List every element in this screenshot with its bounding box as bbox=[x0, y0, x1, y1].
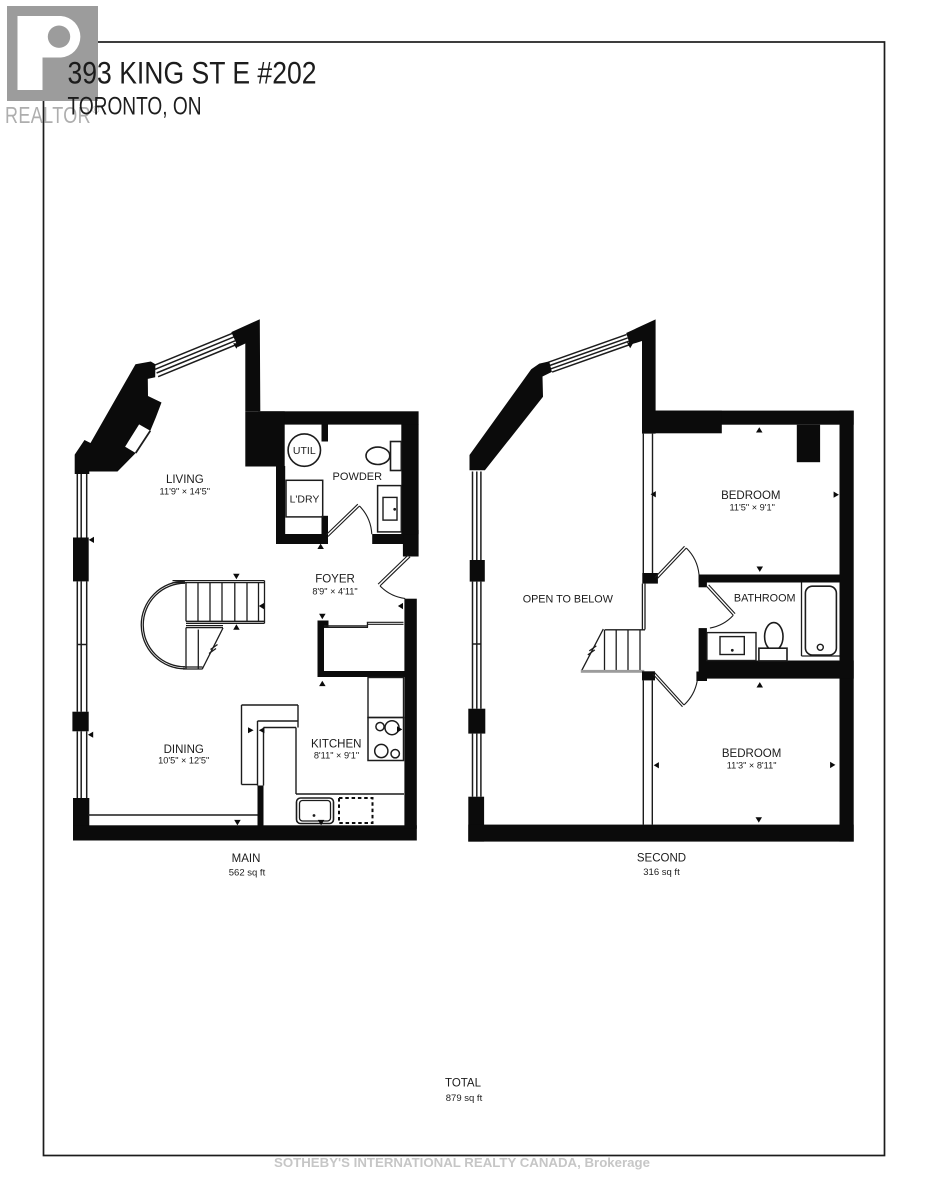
svg-text:393 KING ST E #202: 393 KING ST E #202 bbox=[68, 55, 317, 91]
svg-text:KITCHEN: KITCHEN bbox=[311, 738, 361, 750]
svg-text:UTIL: UTIL bbox=[293, 445, 316, 457]
svg-text:OPEN TO BELOW: OPEN TO BELOW bbox=[523, 594, 614, 606]
svg-text:10'5" × 12'5": 10'5" × 12'5" bbox=[158, 756, 209, 766]
svg-text:BEDROOM: BEDROOM bbox=[722, 748, 781, 760]
svg-text:MAIN: MAIN bbox=[232, 853, 261, 865]
svg-text:TOTAL: TOTAL bbox=[445, 1077, 482, 1089]
svg-text:TORONTO, ON: TORONTO, ON bbox=[68, 92, 202, 120]
svg-text:8'11" × 9'1": 8'11" × 9'1" bbox=[314, 750, 359, 760]
svg-text:11'3" × 8'11": 11'3" × 8'11" bbox=[727, 761, 777, 771]
svg-text:L'DRY: L'DRY bbox=[290, 493, 320, 505]
svg-text:LIVING: LIVING bbox=[166, 474, 204, 486]
svg-text:SECOND: SECOND bbox=[637, 852, 686, 864]
svg-text:11'9" × 14'5": 11'9" × 14'5" bbox=[160, 487, 210, 497]
svg-text:POWDER: POWDER bbox=[333, 471, 383, 483]
svg-text:SOTHEBY'S INTERNATIONAL REALTY: SOTHEBY'S INTERNATIONAL REALTY CANADA, B… bbox=[274, 1155, 650, 1170]
svg-text:FOYER: FOYER bbox=[315, 573, 355, 585]
svg-text:BEDROOM: BEDROOM bbox=[721, 490, 780, 502]
svg-text:316 sq ft: 316 sq ft bbox=[643, 867, 680, 878]
svg-text:562 sq ft: 562 sq ft bbox=[229, 868, 266, 879]
svg-text:BATHROOM: BATHROOM bbox=[734, 593, 796, 605]
svg-text:8'9" × 4'11": 8'9" × 4'11" bbox=[312, 586, 357, 596]
svg-text:879 sq ft: 879 sq ft bbox=[446, 1093, 483, 1104]
svg-text:DINING: DINING bbox=[164, 744, 204, 756]
svg-text:11'5" × 9'1": 11'5" × 9'1" bbox=[730, 503, 775, 513]
